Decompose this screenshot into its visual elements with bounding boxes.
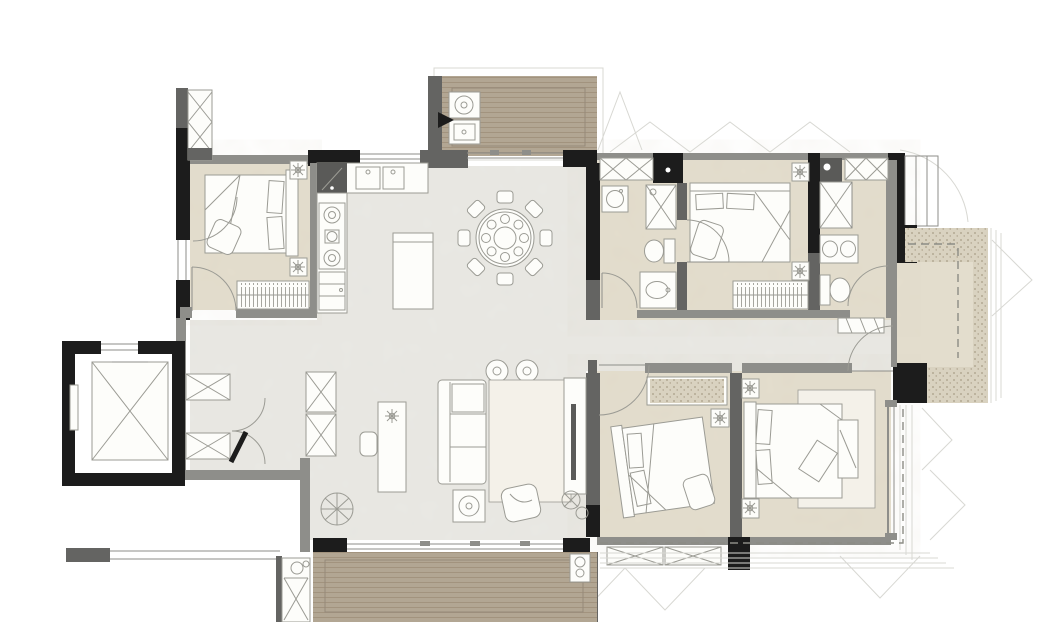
pillow bbox=[627, 433, 643, 468]
closet-hatch bbox=[600, 158, 653, 180]
nightstand bbox=[290, 161, 307, 179]
round-dining-table bbox=[476, 209, 534, 267]
washing-machine bbox=[449, 92, 480, 118]
bedroom1-kitchen-wall bbox=[310, 163, 317, 310]
pillow bbox=[267, 181, 284, 214]
sofa bbox=[438, 380, 486, 484]
wardrobe-bedroom-1 bbox=[237, 281, 309, 309]
vanity-sink bbox=[640, 272, 676, 308]
elevator bbox=[62, 341, 185, 486]
tv-console bbox=[564, 378, 586, 494]
nightstand bbox=[792, 262, 809, 280]
pillow bbox=[267, 216, 284, 249]
storage-cabinets-west bbox=[306, 372, 336, 456]
floor-plan-page bbox=[0, 0, 1054, 622]
wardrobe-bedroom-3 bbox=[647, 377, 727, 405]
utility-shaft-bottom bbox=[276, 556, 310, 622]
potted-plant-sw bbox=[321, 493, 353, 525]
kitchen-island bbox=[393, 233, 433, 309]
pillow bbox=[756, 410, 772, 445]
toilet bbox=[645, 239, 676, 263]
nightstand bbox=[711, 409, 729, 427]
elevator-panel bbox=[70, 385, 78, 430]
coffee-table bbox=[453, 490, 485, 522]
shoe-cabinet bbox=[186, 433, 230, 459]
living-balcony bbox=[313, 552, 597, 622]
headboard bbox=[744, 402, 756, 498]
desk-chair bbox=[360, 432, 377, 456]
laundry-sink bbox=[449, 120, 480, 144]
toilet bbox=[820, 275, 850, 305]
washer bbox=[602, 186, 628, 212]
double-vanity bbox=[820, 235, 858, 263]
bedroom3-master-divider bbox=[730, 373, 742, 540]
closet-hatch bbox=[845, 158, 888, 180]
shower bbox=[646, 185, 676, 229]
elevator-car bbox=[92, 362, 168, 460]
tv bbox=[571, 404, 576, 480]
pillow bbox=[696, 193, 724, 209]
lounge-chair bbox=[500, 483, 542, 524]
nightstand bbox=[792, 163, 809, 181]
bench bbox=[838, 420, 858, 478]
wardrobe-bedroom-2 bbox=[733, 281, 808, 309]
pillow bbox=[727, 193, 755, 209]
service-balcony bbox=[428, 68, 603, 160]
utility-shaft-top bbox=[188, 90, 212, 160]
bed-master bbox=[744, 402, 842, 498]
nightstand bbox=[290, 258, 307, 276]
floor-plan bbox=[0, 0, 1054, 622]
nightstand bbox=[742, 379, 759, 398]
shoe-cabinet bbox=[186, 374, 230, 400]
bench bbox=[838, 318, 884, 333]
headboard bbox=[286, 170, 298, 256]
balcony-taps bbox=[570, 554, 590, 582]
nightstand bbox=[742, 499, 759, 518]
